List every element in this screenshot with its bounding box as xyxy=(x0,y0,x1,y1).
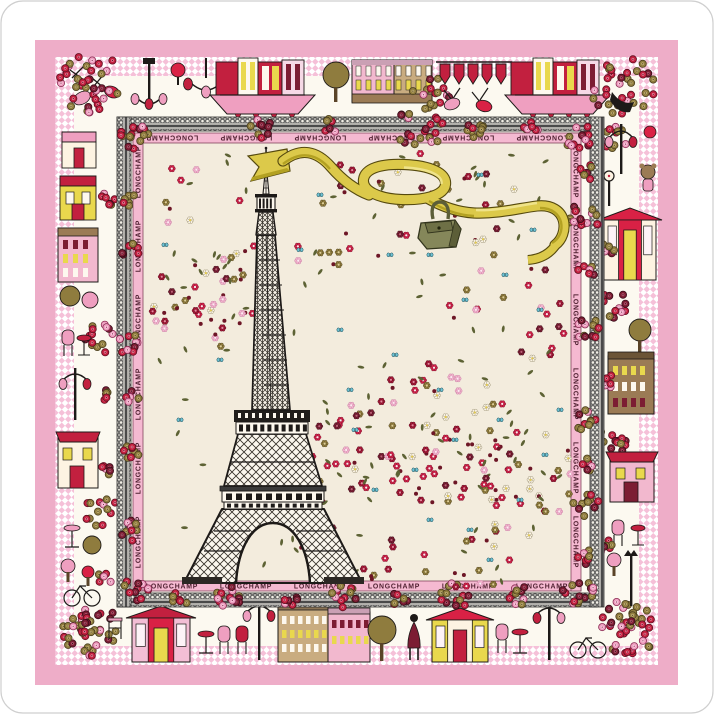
svg-text:LONGCHAMP: LONGCHAMP xyxy=(136,146,143,198)
svg-text:LONGCHAMP: LONGCHAMP xyxy=(368,584,420,591)
svg-text:LONGCHAMP: LONGCHAMP xyxy=(516,133,568,140)
svg-text:LONGCHAMP: LONGCHAMP xyxy=(220,584,272,591)
svg-text:LONGCHAMP: LONGCHAMP xyxy=(146,133,198,140)
svg-text:LONGCHAMP: LONGCHAMP xyxy=(571,146,578,198)
svg-text:LONGCHAMP: LONGCHAMP xyxy=(136,368,143,420)
svg-text:LONGCHAMP: LONGCHAMP xyxy=(146,584,198,591)
svg-text:LONGCHAMP: LONGCHAMP xyxy=(294,133,346,140)
svg-text:LONGCHAMP: LONGCHAMP xyxy=(442,133,494,140)
svg-text:LONGCHAMP: LONGCHAMP xyxy=(571,442,578,494)
